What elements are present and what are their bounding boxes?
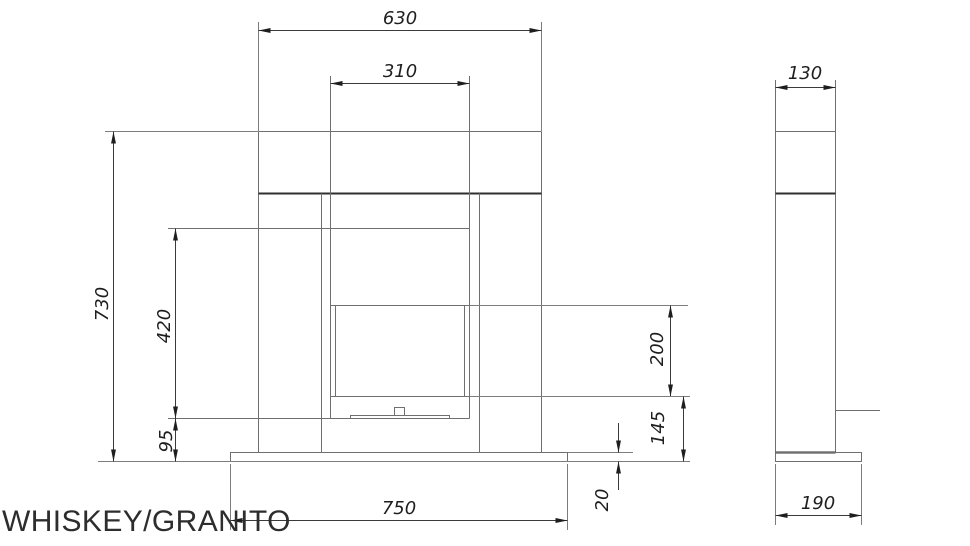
base-plinth: [231, 453, 568, 462]
dimension-label: 730: [92, 287, 113, 321]
dim-window-height: 200: [470, 306, 689, 397]
firebox-recess: [168, 76, 470, 419]
dimension-label: 95: [156, 430, 177, 453]
dimension-label: 145: [648, 411, 669, 445]
dimension-label: 420: [154, 309, 175, 343]
technical-drawing-page: 630 310 730 420 95 200: [0, 0, 970, 546]
dim-base-depth: 190: [776, 464, 862, 525]
dim-opening-width: 310: [331, 61, 470, 84]
side-base-plinth: [776, 453, 862, 462]
model-title: WHISKEY/GRANITO: [2, 505, 291, 539]
dimension-label: 750: [382, 498, 416, 519]
dim-body-depth: 130: [776, 63, 836, 88]
burner: [351, 408, 450, 419]
dimension-label: 200: [647, 332, 668, 366]
firebox-window: [331, 306, 470, 397]
side-view: [776, 80, 881, 462]
fireplace-dimension-drawing: 630 310 730 420 95 200: [0, 0, 970, 546]
front-body: [259, 132, 542, 454]
dimensions-side: 130 190: [776, 63, 862, 525]
dimension-label: 630: [383, 8, 417, 29]
dimension-label: 20: [592, 489, 613, 512]
front-base: [98, 453, 690, 462]
dim-opening-height: 420: [154, 229, 176, 419]
front-view: [98, 76, 690, 462]
dimension-label: 310: [383, 61, 417, 82]
dimensions-front: 630 310 730 420 95 200: [92, 8, 690, 530]
burner-box: [395, 408, 405, 416]
dimension-label: 130: [788, 63, 822, 84]
dim-base-thickness: 20: [568, 423, 633, 511]
dim-window-bottom-height: 145: [470, 397, 691, 462]
dimension-label: 190: [801, 493, 835, 514]
dim-hearth-height: 95: [156, 419, 177, 462]
